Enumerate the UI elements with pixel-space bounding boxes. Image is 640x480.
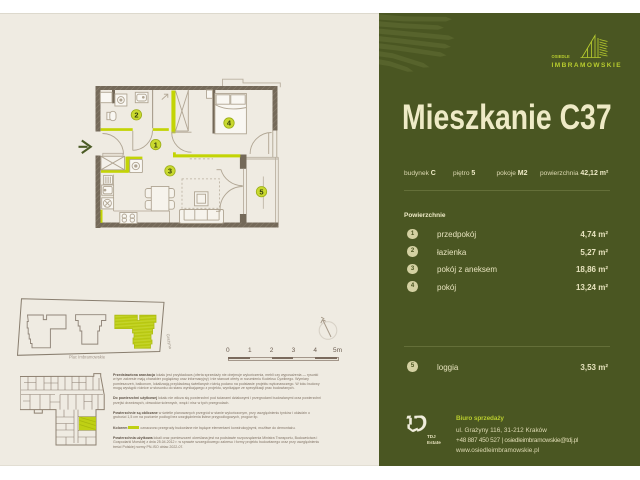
svg-text:OSIEDLE: OSIEDLE [552,54,571,59]
svg-text:1: 1 [154,140,158,149]
svg-text:Plac Imbramowskie: Plac Imbramowskie [69,355,106,360]
svg-text:2: 2 [134,111,138,120]
svg-text:Grażyna: Grażyna [166,333,174,350]
svg-text:5: 5 [259,187,263,196]
svg-text:3: 3 [168,167,172,176]
svg-text:IMBRAMOWSKIE: IMBRAMOWSKIE [552,62,622,69]
